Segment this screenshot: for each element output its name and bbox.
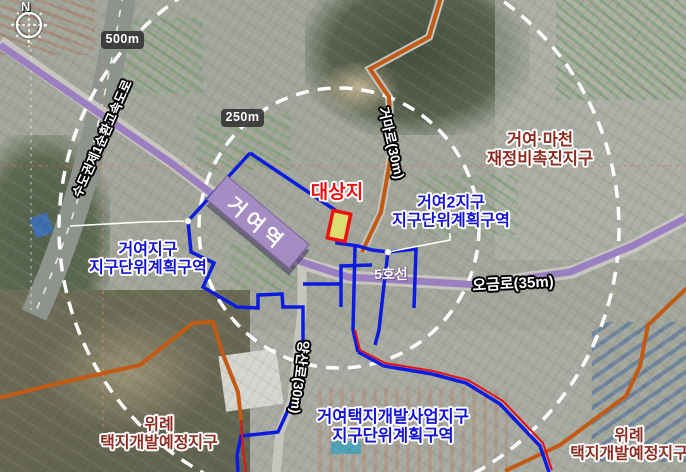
anchor-dot-geoyeo <box>185 218 191 224</box>
ring-badge-500m: 500m <box>101 31 144 49</box>
district-taekji-line1: 거여택지개발사업지구 <box>317 408 469 427</box>
district-geoyeo2-line1: 거여2지구 <box>392 195 510 213</box>
district-label-taekji: 거여택지개발사업지구 지구단위계획구역 <box>317 408 469 446</box>
target-site-label: 대상지 <box>311 182 363 204</box>
district-geoyeo2-line2: 지구단위계획구역 <box>392 213 510 231</box>
district-wirye-right-line1: 위례 <box>570 428 686 446</box>
district-wirye-left-line2: 택지개발예정지구 <box>100 435 218 453</box>
ring-badge-250m: 250m <box>221 109 264 127</box>
leader-geoyeo2 <box>388 233 450 252</box>
map-overlay <box>0 0 686 472</box>
district-label-wirye-left: 위례 택지개발예정지구 <box>100 417 218 454</box>
leader-geoyeo <box>70 221 188 226</box>
satellite-planning-map: 거여역 N 500m 250m 수도권제1순환고속도로 거마로(30m) 오금로… <box>0 0 686 472</box>
district-geoyeo-line1: 거여지구 <box>89 242 207 260</box>
anchor-dot-geoyeo2 <box>385 249 391 255</box>
district-label-geoyeo: 거여지구 지구단위계획구역 <box>89 242 207 279</box>
district-label-geoyeo-macheon: 거여·마천 재정비촉진지구 <box>487 131 593 169</box>
ring-250m-text: 250m <box>226 110 260 124</box>
target-site-rect <box>327 210 350 241</box>
district-label-wirye-right: 위례 택지개발예정지구 <box>570 428 686 465</box>
district-macheon-line2: 재정비촉진지구 <box>487 150 593 169</box>
district-taekji-line2: 지구단위계획구역 <box>317 427 469 446</box>
district-geoyeo-line2: 지구단위계획구역 <box>89 260 207 278</box>
boundary-red-southwest <box>241 420 246 472</box>
compass-north-label: N <box>21 0 30 14</box>
district-macheon-line1: 거여·마천 <box>487 131 593 150</box>
subway-line5-label: 5호선 <box>374 266 408 282</box>
boundary-red-taekji <box>355 330 552 470</box>
district-wirye-left-line1: 위례 <box>100 417 218 435</box>
district-wirye-right-line2: 택지개발예정지구 <box>570 446 686 464</box>
district-label-geoyeo2: 거여2지구 지구단위계획구역 <box>392 195 510 232</box>
ring-500m-text: 500m <box>106 32 140 46</box>
